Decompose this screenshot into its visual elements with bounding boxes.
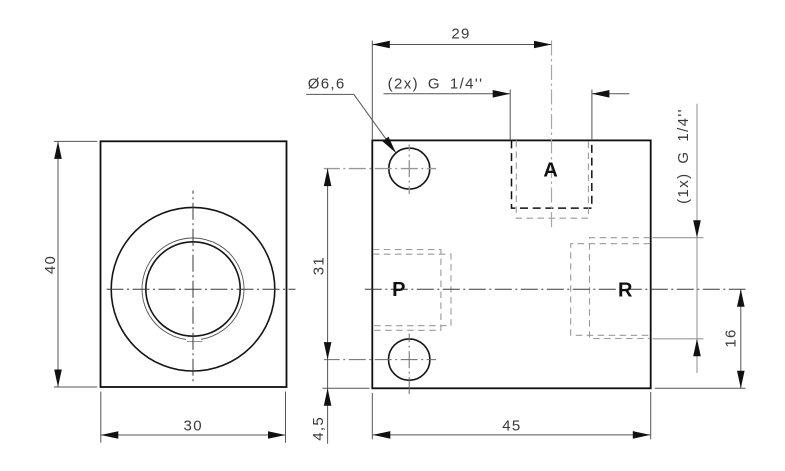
svg-text:P: P xyxy=(392,279,405,301)
svg-text:30: 30 xyxy=(184,418,203,435)
svg-text:(2x) G 1/4'': (2x) G 1/4'' xyxy=(388,75,484,92)
svg-text:29: 29 xyxy=(451,26,470,43)
svg-text:R: R xyxy=(618,279,633,301)
svg-text:Ø6,6: Ø6,6 xyxy=(308,75,346,92)
svg-text:(1x) G 1/4'': (1x) G 1/4'' xyxy=(675,108,692,204)
svg-text:40: 40 xyxy=(42,255,59,274)
svg-text:16: 16 xyxy=(722,328,739,347)
svg-text:31: 31 xyxy=(310,256,327,275)
svg-text:45: 45 xyxy=(502,418,521,435)
svg-text:4,5: 4,5 xyxy=(310,416,327,441)
svg-text:A: A xyxy=(543,160,557,182)
